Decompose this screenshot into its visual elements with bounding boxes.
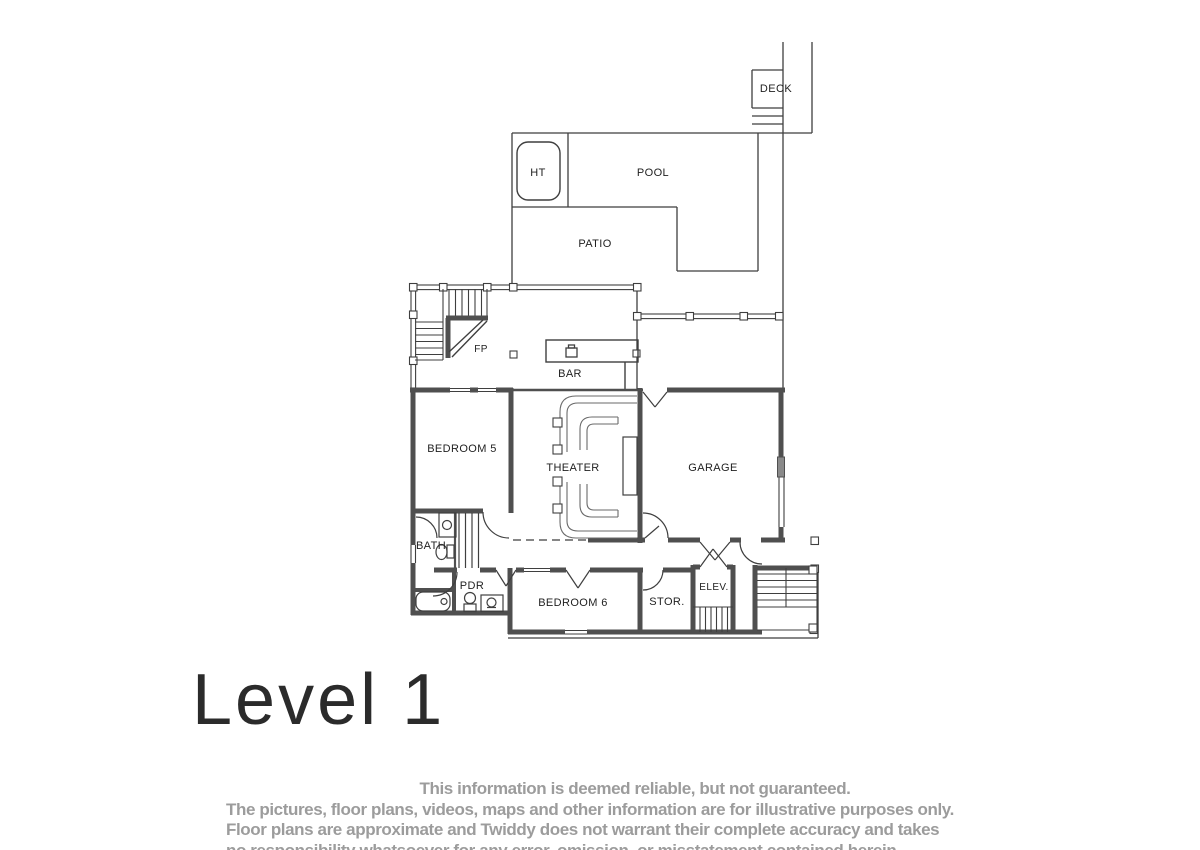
floor-plan-page: DECK POOL HT PATIO FP BAR BEDROOM 5 THEA… [0, 0, 1200, 850]
room-label-deck: DECK [760, 83, 792, 95]
walls [410, 388, 817, 634]
room-label-bedroom5: BEDROOM 5 [427, 443, 497, 455]
disclaimer-line-3: Floor plans are approximate and Twiddy d… [226, 820, 1044, 841]
room-label-stor: STOR. [649, 596, 684, 608]
room-label-bath: BATH [416, 540, 446, 552]
room-label-garage: GARAGE [688, 462, 737, 474]
disclaimer: This information is deemed reliable, but… [226, 779, 1044, 850]
room-label-pdr: PDR [460, 580, 484, 592]
room-label-bar: BAR [558, 368, 582, 380]
room-label-bedroom6: BEDROOM 6 [538, 597, 608, 609]
level-title: Level 1 [192, 664, 445, 736]
deck-stairs-upper [443, 289, 487, 318]
floor-plan-drawing: DECK POOL HT PATIO FP BAR BEDROOM 5 THEA… [0, 0, 1200, 850]
bar-counter [546, 340, 638, 389]
room-label-pool: POOL [637, 167, 669, 179]
powder-room-fixtures [416, 592, 503, 612]
deck-stairs [752, 108, 783, 124]
room-label-elev: ELEV. [699, 582, 728, 593]
elevator-stairs [693, 607, 733, 632]
room-label-theater: THEATER [546, 462, 599, 474]
disclaimer-line-1: This information is deemed reliable, but… [226, 779, 1044, 800]
disclaimer-line-2: The pictures, floor plans, videos, maps … [226, 800, 1044, 821]
bar-sink-icon [566, 345, 577, 357]
theater-screen [623, 437, 637, 495]
deck-stairs-left [415, 318, 443, 360]
garage-side-door [778, 457, 785, 477]
room-label-patio: PATIO [578, 238, 611, 250]
disclaimer-line-4: no responsibility whatsoever for any err… [226, 841, 1044, 850]
room-label-fp: FP [474, 344, 488, 355]
doors [416, 392, 762, 596]
rear-staircase [757, 566, 817, 632]
room-label-ht: HT [530, 167, 545, 179]
